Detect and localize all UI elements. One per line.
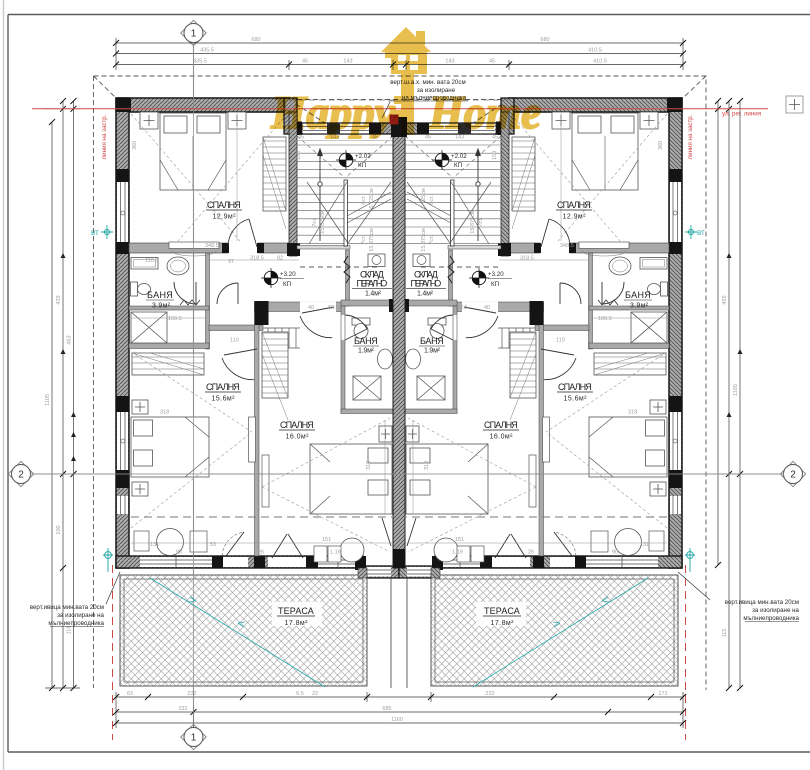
svg-text:ВТ: ВТ xyxy=(697,230,705,237)
svg-text:15.375см: 15.375см xyxy=(421,228,427,252)
svg-text:318: 318 xyxy=(366,461,372,470)
svg-text:331: 331 xyxy=(178,706,187,712)
svg-text:СПАЛНЯ: СПАЛНЯ xyxy=(557,200,591,210)
svg-text:мълниепроводника: мълниепроводника xyxy=(743,615,799,622)
svg-text:1.19: 1.19 xyxy=(330,550,341,556)
svg-text:222: 222 xyxy=(485,691,494,697)
svg-text:45: 45 xyxy=(302,59,308,65)
svg-text:97: 97 xyxy=(228,259,234,265)
svg-text:16.725см: 16.725см xyxy=(369,188,375,212)
svg-text:360: 360 xyxy=(132,141,138,150)
svg-text:17.8м²: 17.8м² xyxy=(285,620,309,627)
svg-text:360: 360 xyxy=(658,141,664,150)
svg-text:22: 22 xyxy=(312,691,318,697)
svg-text:143: 143 xyxy=(445,59,454,65)
svg-text:2: 2 xyxy=(790,470,796,481)
svg-text:мълниепроводника: мълниепроводника xyxy=(48,620,104,627)
svg-text:90: 90 xyxy=(612,550,618,556)
svg-text:2: 2 xyxy=(18,470,24,481)
svg-text:1.19: 1.19 xyxy=(452,550,463,556)
svg-text:463: 463 xyxy=(67,335,73,344)
svg-text:СПАЛНЯ: СПАЛНЯ xyxy=(206,382,240,392)
svg-text:СПАЛНЯ: СПАЛНЯ xyxy=(207,200,241,210)
svg-text:680: 680 xyxy=(540,37,549,43)
svg-text:7ст.: 7ст. xyxy=(429,235,435,245)
svg-text:82.5: 82.5 xyxy=(457,305,468,311)
svg-text:ТЕРАСА: ТЕРАСА xyxy=(484,606,520,616)
svg-text:7ст.: 7ст. xyxy=(361,235,367,245)
svg-text:Home: Home xyxy=(428,87,541,139)
svg-text:ВТ: ВТ xyxy=(91,230,99,237)
svg-text:6ст.: 6ст. xyxy=(361,195,367,205)
svg-text:318.5: 318.5 xyxy=(250,256,264,262)
svg-text:6.5: 6.5 xyxy=(296,691,304,697)
svg-text:150: 150 xyxy=(492,151,498,160)
svg-text:115: 115 xyxy=(722,629,728,638)
svg-text:82.5: 82.5 xyxy=(328,305,339,311)
svg-text:Happy: Happy xyxy=(270,87,395,139)
svg-text:318: 318 xyxy=(160,410,169,416)
svg-text:СПАЛНЯ: СПАЛНЯ xyxy=(484,420,518,430)
svg-text:100.5: 100.5 xyxy=(598,316,612,322)
svg-text:40: 40 xyxy=(484,305,490,311)
svg-text:171: 171 xyxy=(658,691,667,697)
svg-text:+2.02: +2.02 xyxy=(451,153,467,160)
svg-text:7ст.: 7ст. xyxy=(478,217,484,227)
svg-text:685: 685 xyxy=(382,706,391,712)
svg-text:15.375см: 15.375см xyxy=(369,228,375,252)
svg-text:15.875см: 15.875см xyxy=(470,210,476,234)
svg-text:318: 318 xyxy=(424,461,430,470)
svg-text:линия на застр.: линия на застр. xyxy=(101,114,108,159)
svg-text:1: 1 xyxy=(191,733,197,744)
svg-text:16.0м²: 16.0м² xyxy=(490,434,514,441)
svg-text:БАНЯ: БАНЯ xyxy=(625,290,651,300)
svg-text:1105: 1105 xyxy=(733,384,739,396)
svg-text:1.4м²: 1.4м² xyxy=(365,291,382,298)
svg-text:БАНЯ: БАНЯ xyxy=(354,336,378,346)
svg-text:СПАЛНЯ: СПАЛНЯ xyxy=(280,420,314,430)
svg-text:100.5: 100.5 xyxy=(168,316,182,322)
svg-text:15.6м²: 15.6м² xyxy=(212,396,236,403)
svg-text:ПЕРАЛНО: ПЕРАЛНО xyxy=(411,279,442,289)
svg-text:435.5: 435.5 xyxy=(200,48,214,54)
svg-text:БАНЯ: БАНЯ xyxy=(147,290,173,300)
svg-text:110: 110 xyxy=(230,338,239,344)
svg-text:КП: КП xyxy=(491,281,499,288)
svg-text:410.5: 410.5 xyxy=(593,59,607,65)
svg-text:435.5: 435.5 xyxy=(193,59,207,65)
svg-text:318.5: 318.5 xyxy=(520,256,534,262)
svg-text:151: 151 xyxy=(455,537,464,543)
svg-text:1105: 1105 xyxy=(45,394,51,406)
svg-text:15.875см: 15.875см xyxy=(320,210,326,234)
svg-text:ПЕРАЛНО: ПЕРАЛНО xyxy=(357,279,388,289)
svg-text:линия на застр.: линия на застр. xyxy=(687,114,694,159)
svg-text:151: 151 xyxy=(322,537,331,543)
svg-text:1: 1 xyxy=(191,29,197,40)
svg-text:110: 110 xyxy=(556,338,565,344)
svg-text:КП: КП xyxy=(283,281,291,288)
svg-text:1.4м²: 1.4м² xyxy=(417,291,434,298)
svg-text:верт.ивица мин.вата 20см: верт.ивица мин.вата 20см xyxy=(725,599,799,606)
svg-text:КП: КП xyxy=(454,162,462,169)
svg-text:348.5: 348.5 xyxy=(205,243,219,249)
svg-text:26: 26 xyxy=(258,550,264,556)
svg-text:ТЕРАСА: ТЕРАСА xyxy=(278,606,314,616)
svg-text:+3.20: +3.20 xyxy=(280,271,296,278)
svg-text:16.725см: 16.725см xyxy=(421,188,427,212)
svg-text:455: 455 xyxy=(722,295,728,304)
svg-text:СПАЛНЯ: СПАЛНЯ xyxy=(558,382,592,392)
svg-text:ул. рег. линия: ул. рег. линия xyxy=(722,111,761,118)
svg-text:63: 63 xyxy=(127,691,133,697)
svg-text:433: 433 xyxy=(56,295,62,304)
svg-text:318: 318 xyxy=(628,410,637,416)
svg-text:12.9м²: 12.9м² xyxy=(563,214,587,221)
svg-text:90: 90 xyxy=(176,550,182,556)
svg-text:7ст.: 7ст. xyxy=(312,217,318,227)
svg-text:3.9м²: 3.9м² xyxy=(152,303,171,310)
svg-text:верт.ивица мин.вата 20см: верт.ивица мин.вата 20см xyxy=(30,604,104,611)
svg-text:680: 680 xyxy=(251,37,260,43)
svg-text:КП: КП xyxy=(358,162,366,169)
svg-text:6ст.: 6ст. xyxy=(429,195,435,205)
svg-text:+2.02: +2.02 xyxy=(355,153,371,160)
svg-text:за изолиране на: за изолиране на xyxy=(57,612,104,619)
svg-text:45: 45 xyxy=(489,59,495,65)
svg-text:26: 26 xyxy=(528,550,534,556)
svg-text:1160: 1160 xyxy=(391,717,403,723)
svg-text:143: 143 xyxy=(343,59,352,65)
svg-text:12.9м²: 12.9м² xyxy=(213,214,237,221)
svg-text:410.5: 410.5 xyxy=(588,48,602,54)
svg-text:3.9м²: 3.9м² xyxy=(630,303,649,310)
svg-text:+3.20: +3.20 xyxy=(488,271,504,278)
svg-text:16.0м²: 16.0м² xyxy=(286,434,310,441)
svg-text:348.5: 348.5 xyxy=(560,243,574,249)
svg-text:100: 100 xyxy=(56,525,62,534)
svg-text:1.9м²: 1.9м² xyxy=(424,348,441,355)
svg-text:53: 53 xyxy=(210,542,216,548)
svg-text:131: 131 xyxy=(150,542,159,548)
svg-text:за изолиране на: за изолиране на xyxy=(752,607,799,614)
svg-text:150: 150 xyxy=(296,151,302,160)
svg-text:17.8м²: 17.8м² xyxy=(491,620,515,627)
svg-text:110.5: 110.5 xyxy=(145,258,158,264)
svg-text:15.6м²: 15.6м² xyxy=(564,396,588,403)
svg-text:131: 131 xyxy=(640,542,649,548)
svg-text:БАНЯ: БАНЯ xyxy=(420,336,444,346)
svg-text:222: 222 xyxy=(187,691,196,697)
svg-text:82: 82 xyxy=(277,256,283,262)
svg-text:40: 40 xyxy=(308,305,314,311)
svg-text:1.9м²: 1.9м² xyxy=(358,348,375,355)
